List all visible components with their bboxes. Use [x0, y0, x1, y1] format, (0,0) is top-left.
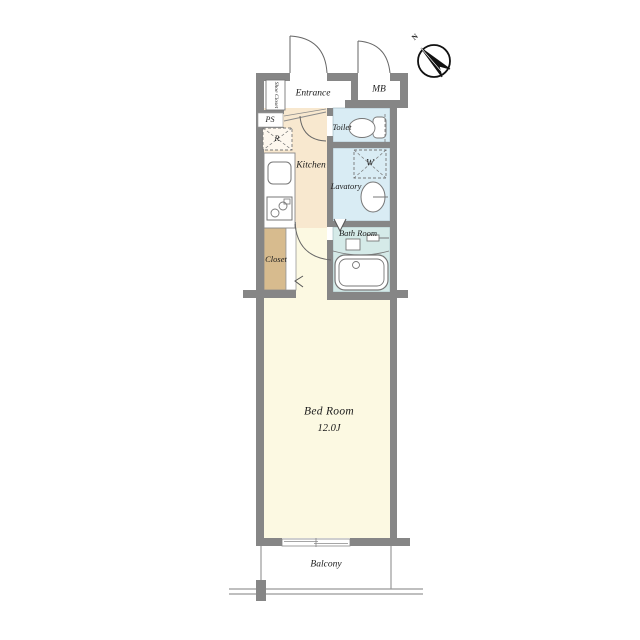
wall-segment — [256, 538, 282, 546]
wall-segment — [327, 240, 333, 292]
bath-room-label: Bath Room — [339, 229, 377, 238]
entrance-label: Entrance — [296, 89, 331, 99]
wall-segment — [390, 290, 408, 298]
kitchen-fixtures — [263, 128, 295, 228]
wall-segment — [327, 108, 333, 116]
toilet-bowl — [349, 119, 375, 138]
ps-label: PS — [266, 116, 275, 124]
wall-segment — [327, 136, 333, 142]
balcony-label: Balcony — [310, 560, 341, 570]
bed-room-size: 12.0J — [317, 424, 340, 435]
compass — [418, 45, 450, 77]
bath-stool — [346, 239, 360, 250]
mb-label: MB — [372, 85, 386, 95]
bathtub-drain — [353, 262, 360, 269]
wall-segment — [350, 538, 410, 546]
lavatory-label: Lavatory — [331, 182, 362, 191]
wall-segment — [243, 290, 296, 298]
entrance-door-swing — [290, 36, 327, 73]
wall-segment — [390, 102, 397, 546]
compass-needle-split — [421, 48, 441, 71]
bedroom-floor — [264, 298, 391, 538]
closet-door — [286, 228, 296, 290]
wall-segment — [327, 292, 397, 300]
bathtub-inner — [339, 259, 384, 286]
kitchen-sink — [268, 162, 291, 184]
washer-label: W — [366, 159, 374, 169]
bed-room-label: Bed Room — [304, 406, 354, 418]
wall-segment — [327, 142, 390, 148]
mb-door-swing — [358, 41, 390, 73]
shoe-closet-label: Shoe Closet — [272, 82, 278, 109]
wall-segment — [351, 73, 358, 104]
balcony-outline — [229, 546, 423, 601]
closet-label: Closet — [265, 255, 287, 264]
balcony-divider — [256, 580, 266, 601]
bedroom-window — [282, 538, 350, 547]
hall-floor — [296, 228, 327, 300]
floor-plan: Entrance MB Shoe Closet PS R Kitchen Toi… — [0, 0, 640, 640]
toilet-label: Toilet — [332, 123, 351, 132]
kitchen-label: Kitchen — [296, 161, 326, 171]
refrigerator-label: R — [275, 135, 280, 143]
